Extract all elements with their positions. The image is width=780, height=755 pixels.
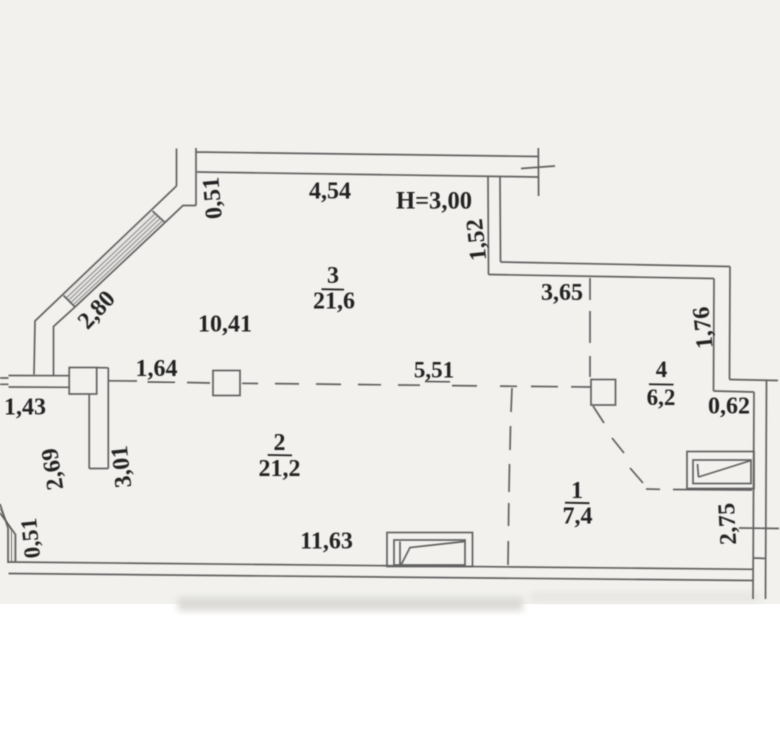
svg-text:6,2: 6,2	[647, 385, 676, 410]
svg-text:7,4: 7,4	[563, 504, 593, 530]
svg-text:1: 1	[571, 478, 583, 504]
svg-text:11,63: 11,63	[300, 529, 353, 555]
svg-text:2,75: 2,75	[714, 502, 742, 545]
svg-text:4: 4	[656, 357, 668, 382]
svg-text:3,65: 3,65	[541, 280, 583, 306]
svg-text:1,43: 1,43	[4, 395, 46, 421]
svg-text:0,62: 0,62	[708, 394, 750, 420]
svg-text:21,6: 21,6	[313, 289, 355, 315]
svg-text:2: 2	[274, 430, 286, 456]
svg-text:1,52: 1,52	[462, 217, 492, 261]
svg-text:0,51: 0,51	[16, 517, 45, 560]
svg-text:1,64: 1,64	[136, 356, 178, 382]
svg-text:0,51: 0,51	[198, 176, 228, 220]
svg-text:21,2: 21,2	[259, 456, 301, 482]
svg-text:5,51: 5,51	[414, 358, 454, 383]
svg-text:3,01: 3,01	[107, 444, 137, 488]
svg-text:4,54: 4,54	[309, 179, 351, 205]
svg-text:10,41: 10,41	[198, 312, 252, 338]
svg-text:H=3,00: H=3,00	[396, 188, 472, 215]
svg-text:1,76: 1,76	[688, 305, 718, 349]
svg-text:3: 3	[327, 263, 339, 289]
